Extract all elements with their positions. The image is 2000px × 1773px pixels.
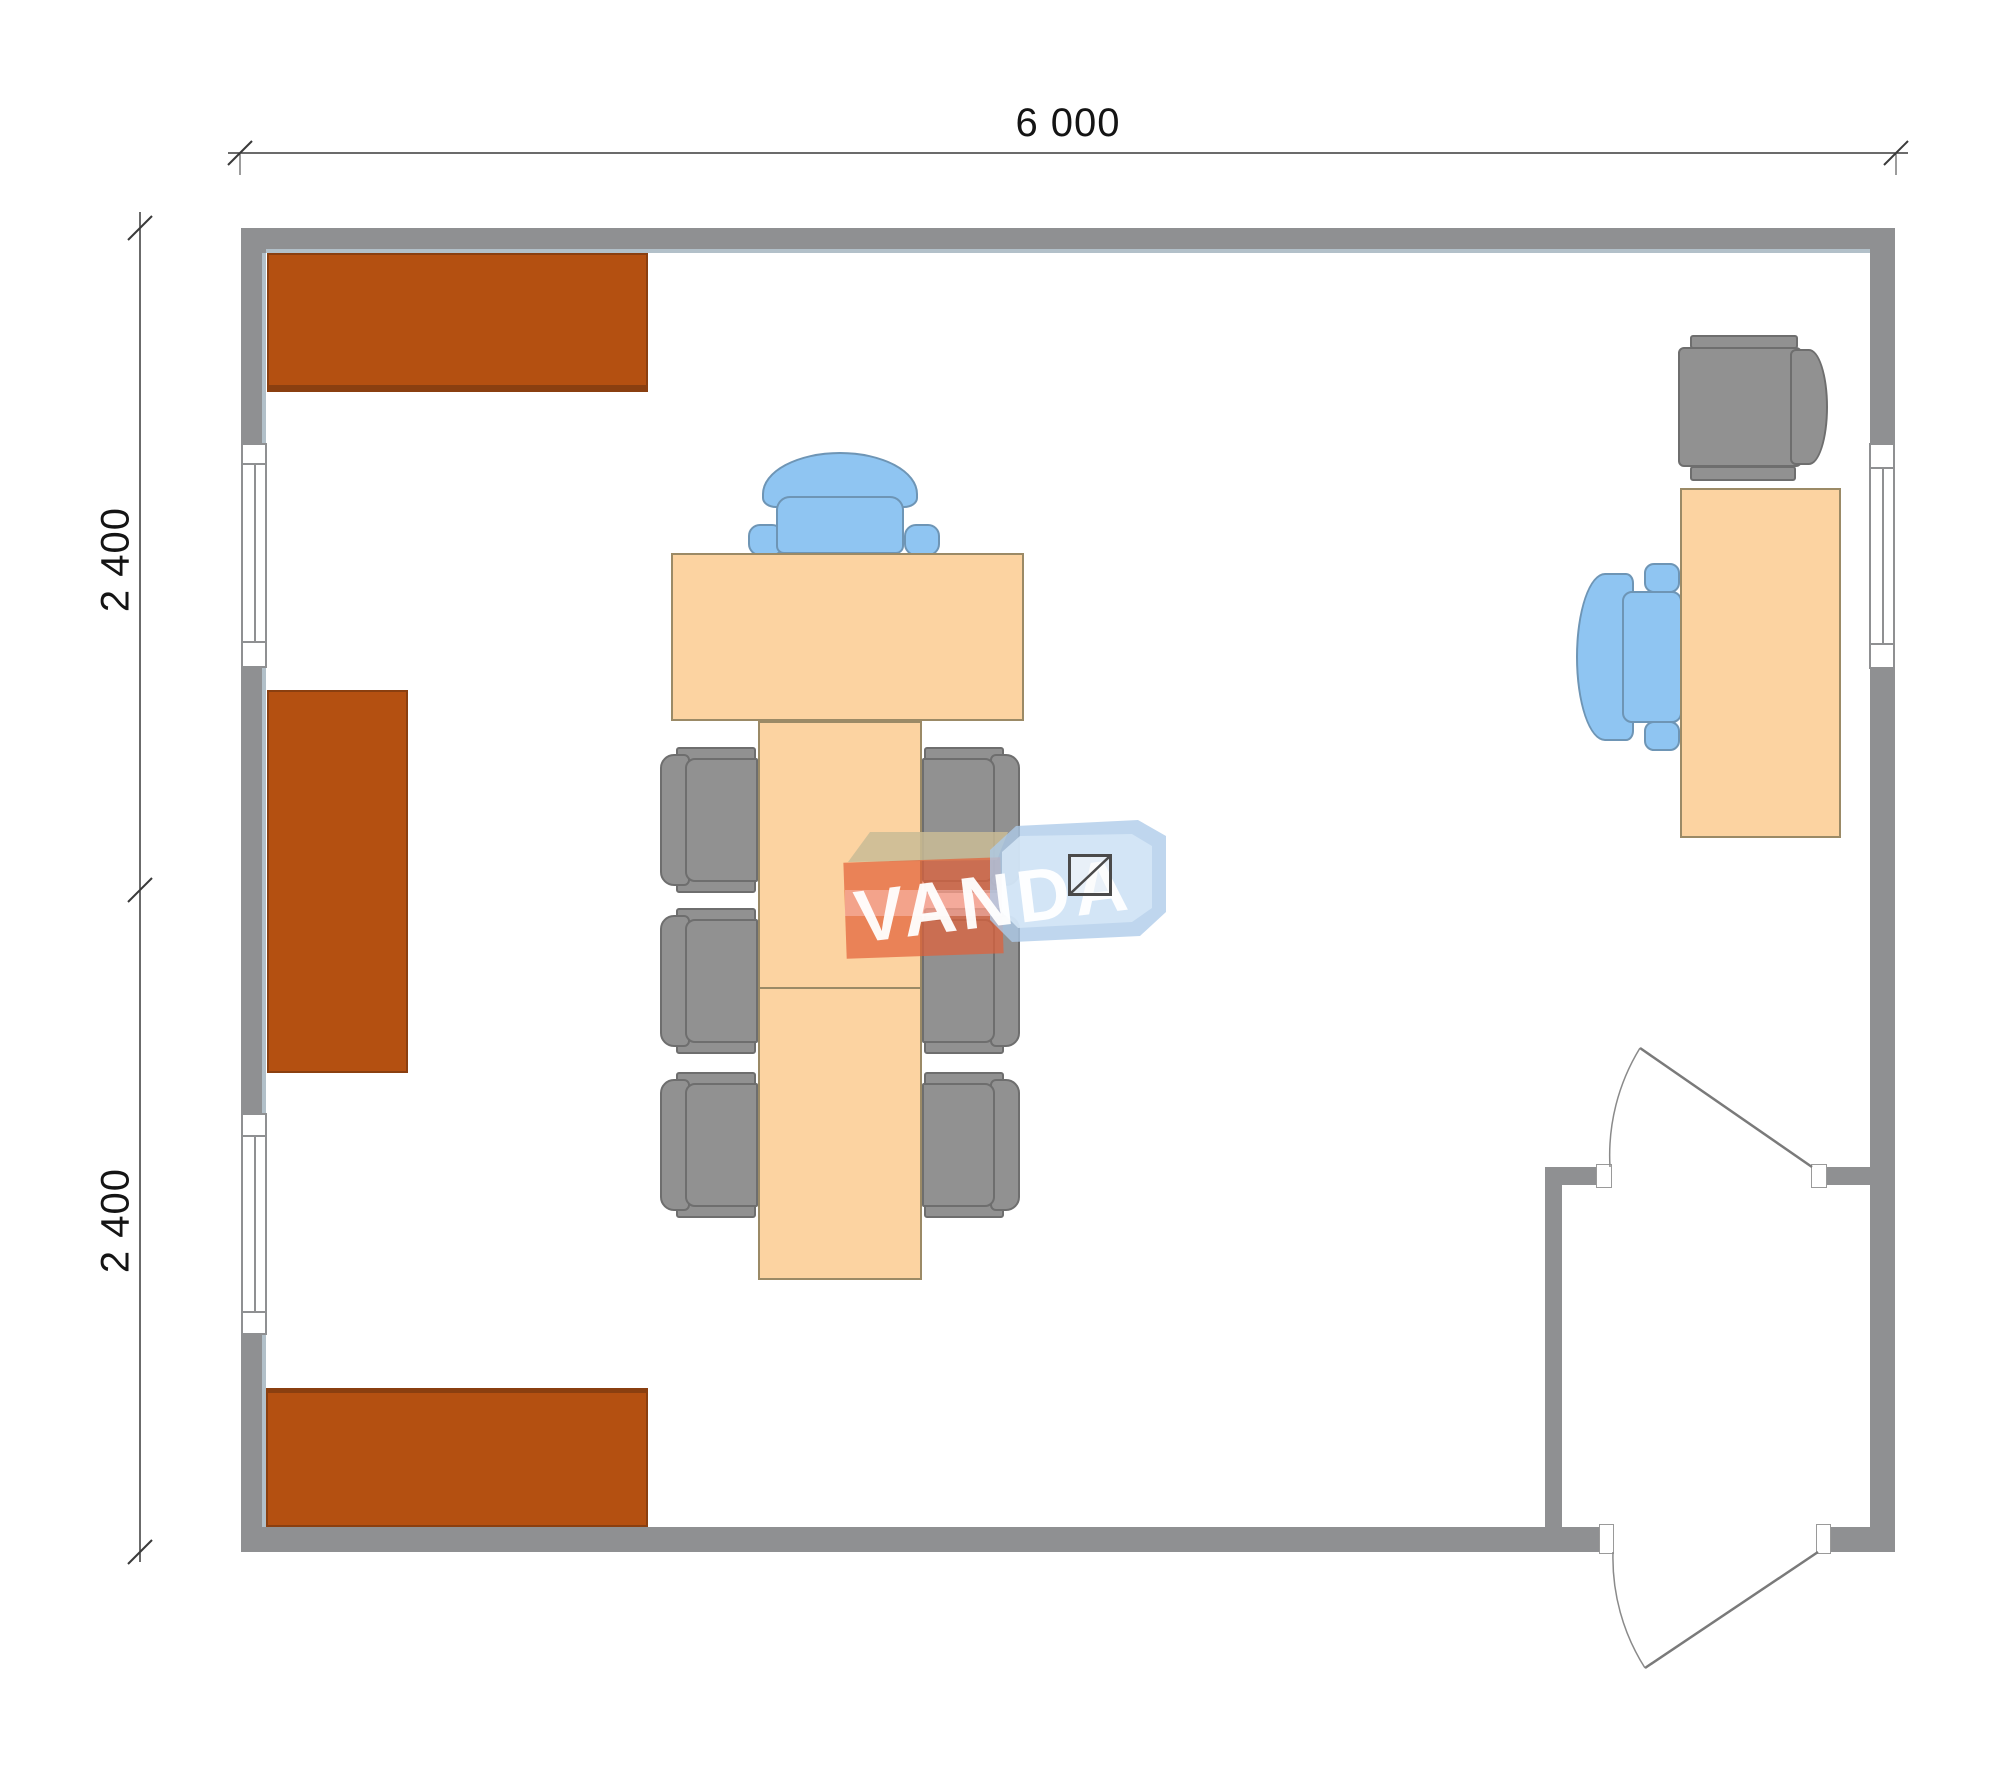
watermark-diagonal-icon [1071, 857, 1109, 893]
exterior-door-leaf-icon [1645, 1552, 1818, 1668]
floor-plan: 6 000 2 400 2 400 VANDA [0, 0, 2000, 1773]
vanda-watermark: VANDA [840, 812, 1180, 972]
interior-door-leaf-icon [1640, 1048, 1812, 1167]
watermark-logo-square-icon [1068, 854, 1112, 896]
desk [1680, 488, 1841, 838]
exterior-door-swing-arc-icon [1613, 1552, 1645, 1668]
conference-head-table [671, 553, 1024, 721]
interior-door-swing-arc-icon [1610, 1048, 1640, 1167]
conference-table-column-lower [758, 987, 922, 1280]
